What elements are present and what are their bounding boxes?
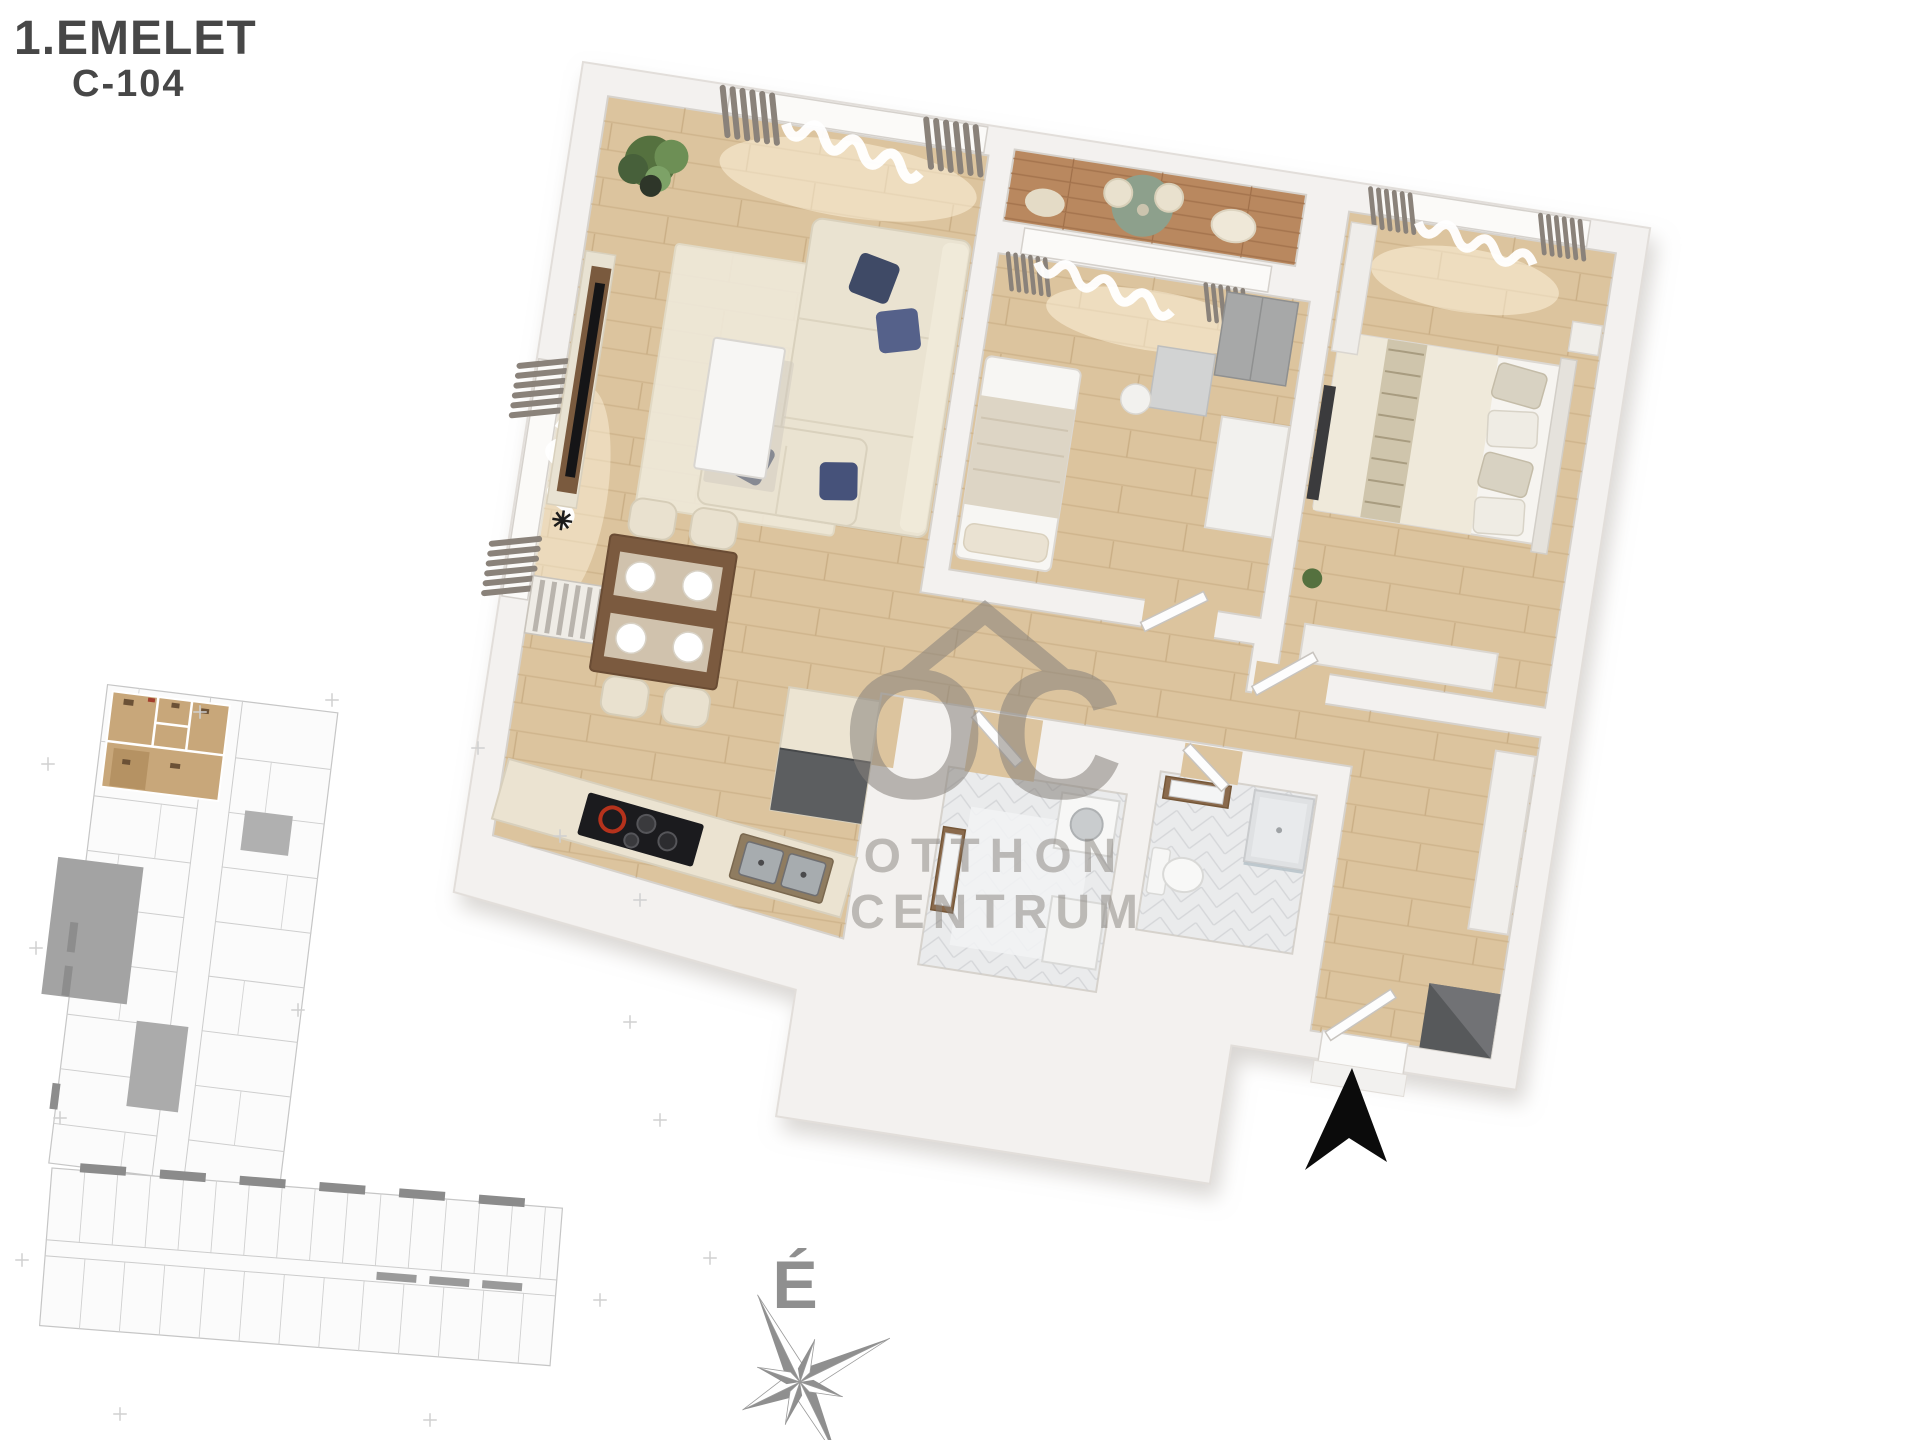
brand-logo-text: OC	[842, 632, 1128, 838]
dining-chair	[599, 675, 650, 720]
dining-chair	[688, 506, 739, 551]
highlighted-unit	[101, 691, 230, 801]
brand-line2: CENTRUM	[850, 886, 1146, 939]
courtyard-block	[41, 857, 143, 1004]
north-label: É	[772, 1247, 817, 1323]
page: 1.EMELET C-104	[0, 0, 1920, 1440]
storage-niche	[1419, 983, 1500, 1058]
bedroom-small	[949, 225, 1314, 618]
brand-line1: OTTHON	[864, 830, 1127, 883]
courtyard-block	[126, 1021, 188, 1113]
nightstand	[1568, 321, 1602, 355]
shower	[1244, 790, 1315, 872]
watermark: OC OTTHON CENTRUM	[842, 600, 1146, 939]
courtyard-block	[240, 810, 293, 856]
compass-rose: É	[700, 1247, 928, 1440]
pillow	[875, 308, 921, 354]
floor-plan-canvas: OC OTTHON CENTRUM	[0, 0, 1920, 1440]
pillow	[819, 462, 858, 501]
dining-chair	[627, 497, 678, 542]
dining-chair	[660, 684, 711, 729]
